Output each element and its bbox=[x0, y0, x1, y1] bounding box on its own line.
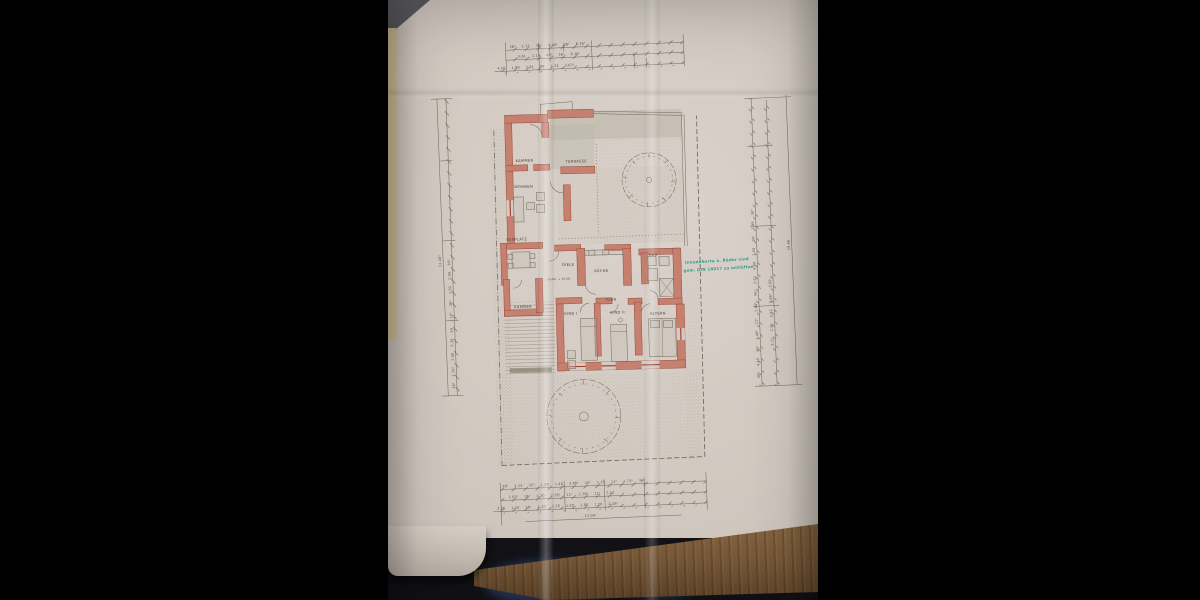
photo-area: KAMMER TERRASSE WOHNEN ESSPLATZ DIELE GA… bbox=[388, 0, 818, 600]
photo-vignette bbox=[388, 0, 818, 600]
photo-of-floor-plan: KAMMER TERRASSE WOHNEN ESSPLATZ DIELE GA… bbox=[0, 0, 1200, 600]
